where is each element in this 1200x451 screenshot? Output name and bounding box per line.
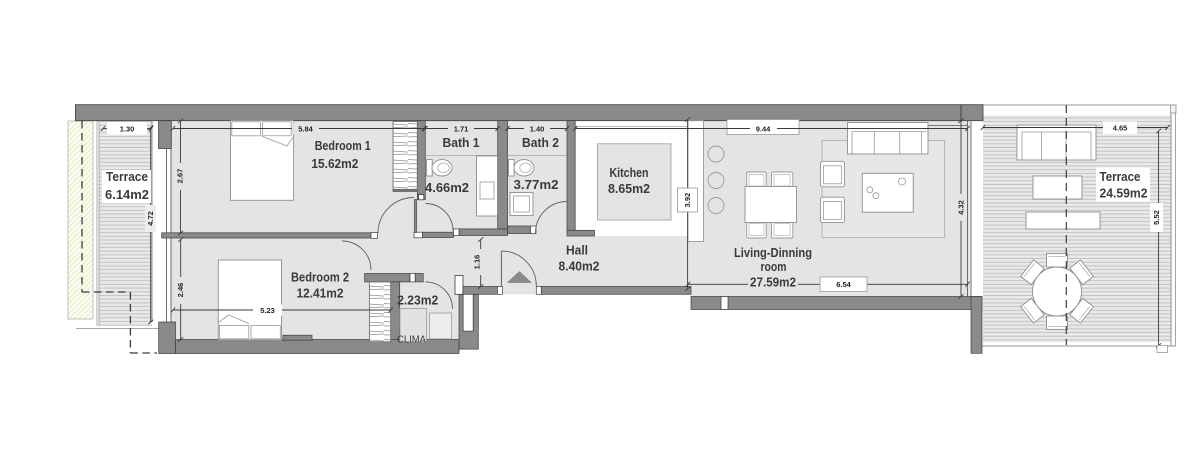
svg-text:Bath 2: Bath 2 (522, 135, 559, 150)
svg-text:1.16: 1.16 (473, 255, 482, 270)
svg-text:Bedroom 2: Bedroom 2 (291, 270, 349, 285)
svg-text:Living-Dinning: Living-Dinning (734, 245, 812, 260)
svg-text:Terrace: Terrace (1100, 169, 1141, 184)
svg-text:9.44: 9.44 (756, 124, 771, 133)
svg-text:4.65: 4.65 (1113, 123, 1128, 132)
svg-text:CLIMA: CLIMA (397, 334, 426, 346)
svg-text:1.71: 1.71 (454, 124, 469, 133)
svg-text:4.66m2: 4.66m2 (425, 180, 469, 195)
svg-text:15.62m2: 15.62m2 (311, 156, 358, 171)
svg-text:room: room (761, 259, 787, 274)
svg-text:3.92: 3.92 (683, 193, 692, 208)
svg-text:Kitchen: Kitchen (610, 165, 649, 180)
svg-text:2.46: 2.46 (176, 283, 185, 298)
svg-text:5.23: 5.23 (260, 306, 275, 315)
svg-text:8.65m2: 8.65m2 (608, 181, 650, 196)
svg-text:2.23m2: 2.23m2 (397, 293, 438, 308)
svg-text:4.32: 4.32 (957, 200, 966, 215)
svg-text:6.54: 6.54 (836, 280, 851, 289)
svg-text:Terrace: Terrace (106, 169, 148, 184)
svg-text:3.77m2: 3.77m2 (514, 177, 559, 192)
svg-text:6.14m2: 6.14m2 (105, 187, 149, 202)
svg-text:12.41m2: 12.41m2 (297, 286, 344, 301)
svg-text:Hall: Hall (566, 243, 588, 258)
svg-text:24.59m2: 24.59m2 (1100, 186, 1148, 201)
svg-text:8.40m2: 8.40m2 (559, 259, 600, 274)
svg-text:5.52: 5.52 (1152, 210, 1161, 225)
svg-text:2.67: 2.67 (176, 169, 185, 184)
svg-text:27.59m2: 27.59m2 (750, 275, 796, 290)
svg-text:Bedroom 1: Bedroom 1 (315, 138, 371, 153)
svg-text:Bath 1: Bath 1 (443, 135, 480, 150)
svg-text:5.84: 5.84 (298, 124, 313, 133)
svg-text:1.30: 1.30 (120, 124, 135, 133)
svg-text:1.40: 1.40 (530, 124, 545, 133)
svg-text:4.72: 4.72 (146, 211, 155, 226)
